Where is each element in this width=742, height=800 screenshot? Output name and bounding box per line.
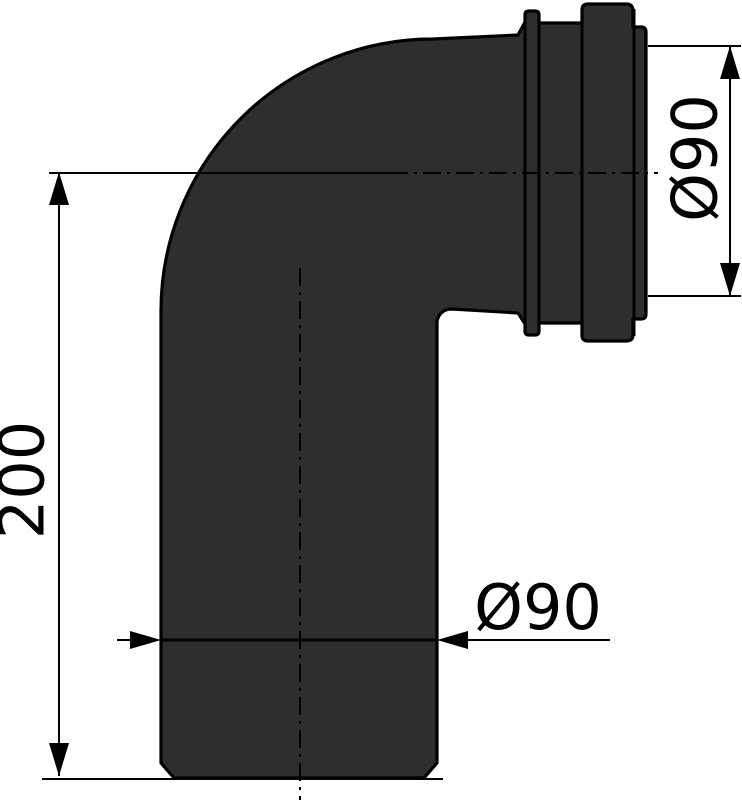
dimension-pipe-label: Ø90: [474, 571, 602, 644]
dimension-height-label: 200: [0, 421, 59, 539]
elbow-silhouette: [161, 4, 646, 778]
arrow-up-icon: [49, 172, 69, 205]
arrow-right-icon: [130, 631, 161, 649]
drawing-canvas: 200 Ø90 Ø90: [0, 0, 742, 800]
dimension-socket-label: Ø90: [659, 94, 732, 222]
arrow-up-icon: [720, 46, 740, 79]
arrow-down-icon: [720, 263, 740, 296]
arrow-down-icon: [49, 743, 69, 776]
arrow-left-icon: [437, 631, 468, 649]
pipe-elbow-technical-drawing: 200 Ø90 Ø90: [0, 0, 742, 800]
dimension-socket-diameter: Ø90: [648, 46, 741, 296]
